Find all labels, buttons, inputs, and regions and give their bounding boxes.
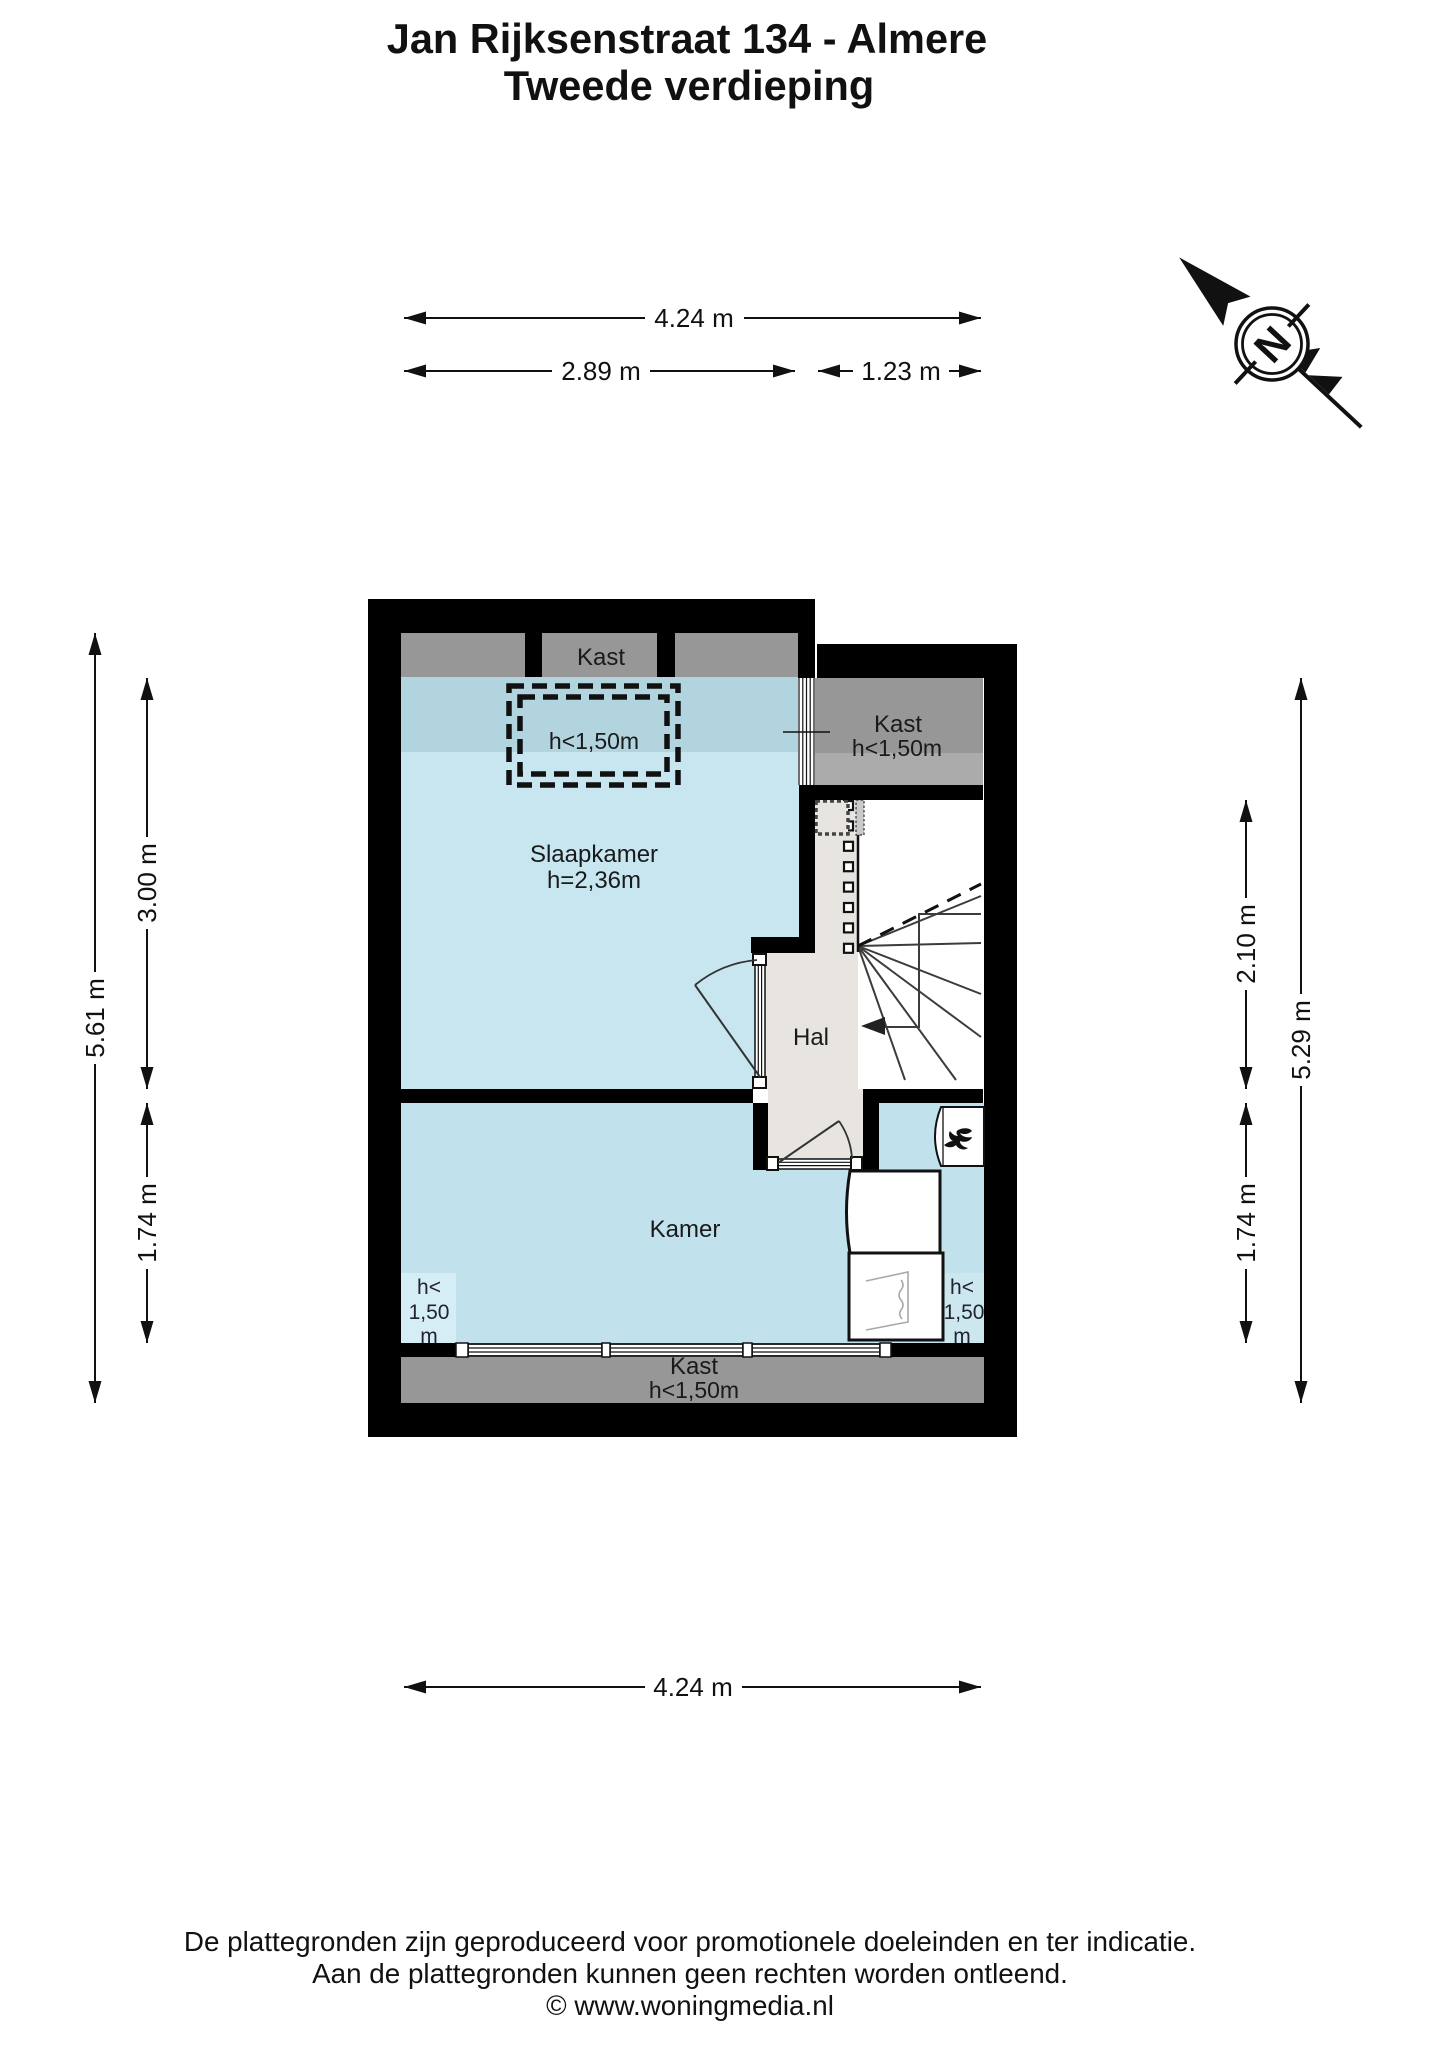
svg-text:2.89 m: 2.89 m (561, 356, 641, 386)
svg-text:1,50: 1,50 (409, 1301, 450, 1324)
svg-text:Jan Rijksenstraat 134 - Almere: Jan Rijksenstraat 134 - Almere (387, 15, 988, 62)
svg-text:h<1,50m: h<1,50m (852, 735, 942, 761)
svg-text:h<: h< (417, 1276, 441, 1299)
svg-text:Kast: Kast (874, 711, 922, 738)
svg-text:h=2,36m: h=2,36m (547, 867, 641, 894)
svg-text:m: m (420, 1325, 438, 1348)
svg-text:5.61 m: 5.61 m (80, 978, 110, 1058)
svg-text:3.00 m: 3.00 m (132, 843, 162, 923)
svg-text:h<: h< (950, 1276, 974, 1299)
svg-text:De plattegronden zijn geproduc: De plattegronden zijn geproduceerd voor … (184, 1926, 1196, 1957)
svg-text:Slaapkamer: Slaapkamer (530, 841, 658, 868)
svg-text:Hal: Hal (793, 1024, 829, 1051)
svg-text:1.74 m: 1.74 m (132, 1183, 162, 1263)
svg-text:5.29 m: 5.29 m (1286, 1000, 1316, 1080)
svg-text:1.74 m: 1.74 m (1231, 1183, 1261, 1263)
svg-text:1,50: 1,50 (944, 1301, 985, 1324)
svg-text:Tweede verdieping: Tweede verdieping (504, 62, 875, 109)
svg-text:Kast: Kast (670, 1353, 718, 1380)
svg-text:h<1,50m: h<1,50m (549, 728, 639, 754)
svg-text:4.24 m: 4.24 m (654, 303, 734, 333)
svg-text:Kamer: Kamer (650, 1216, 721, 1243)
svg-text:Aan de plattegronden kunnen ge: Aan de plattegronden kunnen geen rechten… (312, 1958, 1068, 1989)
svg-text:4.24 m: 4.24 m (653, 1672, 733, 1702)
svg-text:Kast: Kast (577, 644, 625, 671)
svg-text:© www.woningmedia.nl: © www.woningmedia.nl (546, 1990, 834, 2021)
svg-text:h<1,50m: h<1,50m (649, 1377, 739, 1403)
svg-text:2.10 m: 2.10 m (1231, 904, 1261, 984)
svg-text:1.23 m: 1.23 m (861, 356, 941, 386)
svg-text:m: m (953, 1325, 971, 1348)
